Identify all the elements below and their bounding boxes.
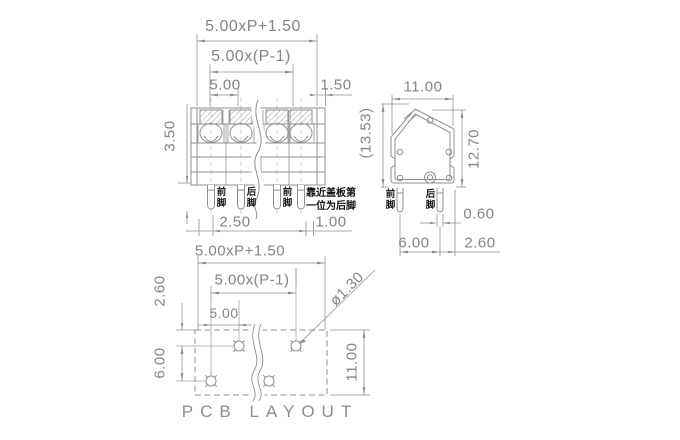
dim-pcb-pitch: 5.00 [209, 306, 238, 320]
side-view [381, 95, 500, 256]
dim-pcb-board-height: 11.00 [345, 343, 360, 382]
dim-pcb-row-spacing: 6.00 [153, 347, 168, 378]
dim-front-last-pin: 1.00 [315, 215, 346, 230]
terminal-block-dimension-drawing: 5.00xP+1.50 5.00x(P-1) 5.00 1.50 3.50 2.… [0, 0, 680, 440]
dim-side-pin-width: 0.60 [463, 207, 494, 222]
dim-pcb-overall-width: 5.00xP+1.50 [195, 244, 285, 259]
dim-front-overall-width: 5.00xP+1.50 [205, 19, 301, 35]
dim-front-edge-to-pin: 2.50 [219, 215, 250, 230]
dim-front-body-height: 3.50 [163, 120, 178, 151]
dim-side-width: 11.00 [404, 80, 443, 95]
dim-front-pitch-span: 5.00x(P-1) [211, 49, 291, 65]
dim-front-pitch: 5.00 [209, 78, 240, 93]
rear-foot-note-line2: 一位为后脚 [306, 201, 356, 214]
side-front-foot-label: 前脚 [385, 190, 396, 211]
front-pin1-label: 前脚 [216, 188, 227, 209]
front-pin3-label: 前脚 [282, 188, 293, 209]
rear-foot-note: 靠近盖板第 一位为后脚 [306, 188, 356, 213]
break-line-pcb [252, 324, 263, 401]
front-pin2-label: 后脚 [246, 188, 257, 209]
dim-pcb-pitch-span: 5.00x(P-1) [214, 273, 289, 288]
side-view-pins [397, 188, 443, 212]
rear-foot-note-line1: 靠近盖板第 [306, 188, 356, 201]
side-view-holes [397, 118, 452, 183]
dim-front-end-margin: 1.50 [320, 78, 351, 93]
dim-side-height: 12.70 [467, 129, 482, 169]
side-rear-foot-label: 后脚 [425, 190, 436, 211]
pcb-layout-title: PCB LAYOUT [182, 402, 358, 422]
dim-side-pin-spacing: 6.00 [398, 236, 429, 251]
dim-side-total-height: (13.53) [359, 107, 374, 158]
dim-side-pin-to-edge: 2.60 [464, 236, 495, 251]
dim-pcb-edge-to-row: 2.60 [153, 275, 168, 306]
